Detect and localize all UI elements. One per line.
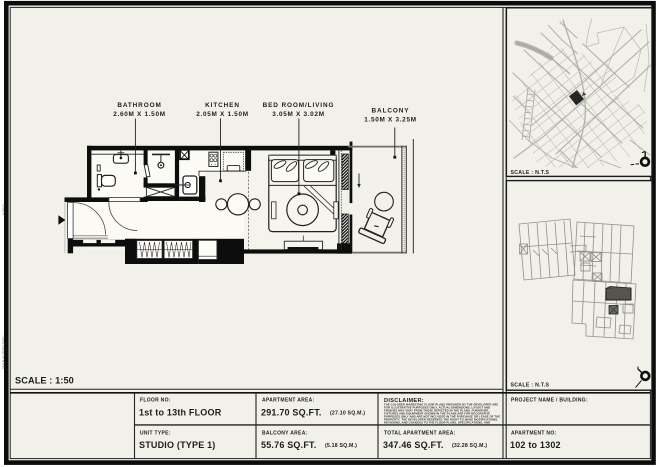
svg-text:(5.18 SQ.M.): (5.18 SQ.M.) — [325, 443, 357, 449]
svg-text:SCALE : 1:50: SCALE : 1:50 — [15, 376, 74, 386]
svg-text:SCALE : N.T.S: SCALE : N.T.S — [511, 383, 550, 389]
svg-text:PROJECT NAME / BUILDING:: PROJECT NAME / BUILDING: — [511, 398, 588, 404]
svg-text:KITCHEN: KITCHEN — [205, 102, 240, 109]
svg-text:TOTAL APARTMENT AREA:: TOTAL APARTMENT AREA: — [384, 430, 456, 436]
svg-text:BED ROOM/LIVING: BED ROOM/LIVING — [263, 102, 335, 109]
svg-text:BALCONY AREA:: BALCONY AREA: — [262, 430, 308, 436]
svg-text:APARTMENT NO:: APARTMENT NO: — [511, 430, 557, 436]
svg-text:291.70 SQ.FT.: 291.70 SQ.FT. — [261, 408, 322, 418]
svg-text:55.76 SQ.FT.: 55.76 SQ.FT. — [261, 440, 316, 450]
svg-text:2.05M X 1.50M: 2.05M X 1.50M — [196, 111, 248, 118]
svg-text:2.60M X 1.50M: 2.60M X 1.50M — [113, 111, 165, 118]
svg-text:UNIT PLAN STUDIO TYPE 1: UNIT PLAN STUDIO TYPE 1 — [2, 335, 6, 369]
svg-text:347.46 SQ.FT.: 347.46 SQ.FT. — [383, 440, 444, 450]
svg-text:(27.10 SQ.M.): (27.10 SQ.M.) — [330, 411, 365, 417]
svg-text:3.05M X 3.02M: 3.05M X 3.02M — [272, 111, 324, 118]
svg-text:UNIT TYPE:: UNIT TYPE: — [140, 430, 171, 436]
svg-text:1.50M X 3.25M: 1.50M X 3.25M — [364, 117, 416, 124]
svg-text:APARTMENT AREA:: APARTMENT AREA: — [262, 398, 315, 404]
svg-text:BATHROOM: BATHROOM — [117, 102, 161, 109]
svg-text:(32.28 SQ.M.): (32.28 SQ.M.) — [452, 443, 487, 449]
svg-text:A-102-13: A-102-13 — [2, 204, 6, 215]
svg-text:STUDIO (TYPE 1): STUDIO (TYPE 1) — [139, 440, 216, 450]
svg-text:REVISIONS, AND CHANGES TO THE: REVISIONS, AND CHANGES TO THE FLOOR PLAN… — [384, 420, 490, 424]
svg-text:BALCONY: BALCONY — [372, 108, 410, 115]
svg-text:SCALE : N.T.S: SCALE : N.T.S — [511, 170, 550, 176]
svg-text:1st to 13th FLOOR: 1st to 13th FLOOR — [139, 408, 222, 418]
svg-text:102 to 1302: 102 to 1302 — [510, 440, 561, 450]
svg-text:FLOOR NO:: FLOOR NO: — [140, 398, 171, 404]
